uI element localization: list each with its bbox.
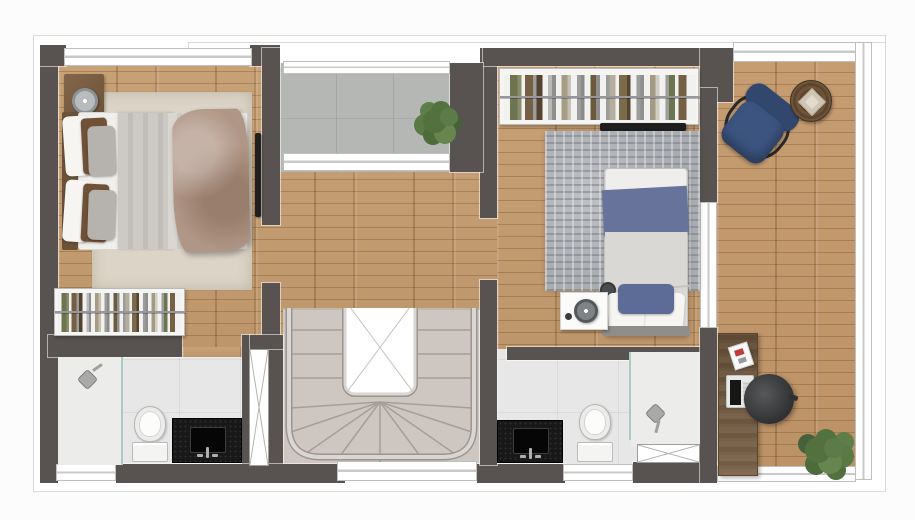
bathroom1-toilet-tank (132, 442, 168, 462)
bedroom2-pillow-blue (618, 284, 674, 314)
wall-bottom-1 (116, 464, 345, 483)
wall-shaft-top (250, 335, 283, 350)
wall-right-upper (700, 88, 717, 202)
shaft-duct (249, 349, 269, 466)
staircase (283, 308, 480, 465)
wall-bedroom1-right-upper (262, 48, 280, 225)
duct-x-icon (638, 445, 699, 462)
bedroom2-terrace-window (700, 202, 717, 328)
bathroom1-toilet-bowl (134, 406, 166, 442)
bathroom1-window-sill (56, 464, 116, 481)
bathroom1-door-threshold (182, 347, 242, 357)
papers-red-mark (734, 348, 744, 356)
balcony-sliding-door (283, 153, 450, 171)
bathroom2-shower-zone (631, 352, 700, 447)
terrace-railing-top (733, 42, 872, 62)
floor-plan (0, 0, 915, 520)
bedroom1-closet-rod (55, 311, 186, 313)
wall-stairs-bathroom2-divider (480, 280, 497, 465)
side-table-tray (798, 88, 826, 116)
wall-bottom-2 (477, 464, 565, 483)
wall-closet1-band (48, 335, 182, 357)
terrace-plant (824, 438, 844, 458)
balcony-top-window (283, 61, 450, 74)
wall-bedroom2-top (483, 48, 712, 66)
terrace-side-table (790, 80, 832, 122)
bathroom2-faucet-handle-l (520, 455, 526, 458)
bedroom1-window (64, 48, 252, 66)
bedroom2-tv (600, 123, 686, 131)
balcony-plant (440, 108, 458, 126)
bedroom2-headboard (602, 326, 690, 336)
bedroom1-wardrobe-rack (54, 288, 185, 336)
bathroom1-glass-partition (121, 357, 123, 465)
bedroom2-nightstand-item (565, 313, 572, 320)
duct-x-icon (250, 350, 268, 465)
bathroom2-faucet-handle-r (535, 455, 541, 458)
bedroom2-wardrobe-rack (499, 68, 699, 125)
laptop-screen (730, 380, 741, 405)
bathroom2-faucet-icon (529, 448, 532, 459)
bathroom2-duct (637, 444, 700, 463)
bedroom2-closet-rod (500, 96, 700, 98)
bathroom2-toilet-tank (577, 442, 613, 462)
bedroom2-clock (574, 299, 598, 323)
bedroom1-duvet (172, 108, 250, 252)
bathroom1-faucet-icon (206, 447, 209, 458)
bedroom1-pillow-gray-1 (87, 126, 117, 177)
wall-right-lower (700, 328, 717, 483)
wall-top-left-pillar (40, 45, 66, 66)
bedroom1-pillow-gray-2 (87, 190, 117, 241)
bathroom2-window-sill (563, 464, 633, 481)
bathroom2-glass-partition (629, 352, 631, 440)
bathroom1-vanity (172, 418, 242, 463)
bedroom1-tv (255, 133, 261, 217)
bathroom1-faucet-handle-l (197, 454, 203, 457)
bedroom1-clock (72, 88, 98, 114)
bedroom1-blanket (118, 113, 174, 249)
bathroom2-toilet-bowl (579, 404, 611, 440)
papers-gray-mark (738, 357, 747, 364)
wall-left (40, 45, 58, 483)
wall-shaft-right (268, 350, 283, 465)
terrace-office-chair (744, 374, 794, 424)
bathroom1-faucet-handle-r (212, 454, 218, 457)
bedroom2-blue-runner (602, 186, 689, 236)
terrace-railing-right (855, 42, 872, 480)
bathroom2-vanity (497, 420, 563, 463)
